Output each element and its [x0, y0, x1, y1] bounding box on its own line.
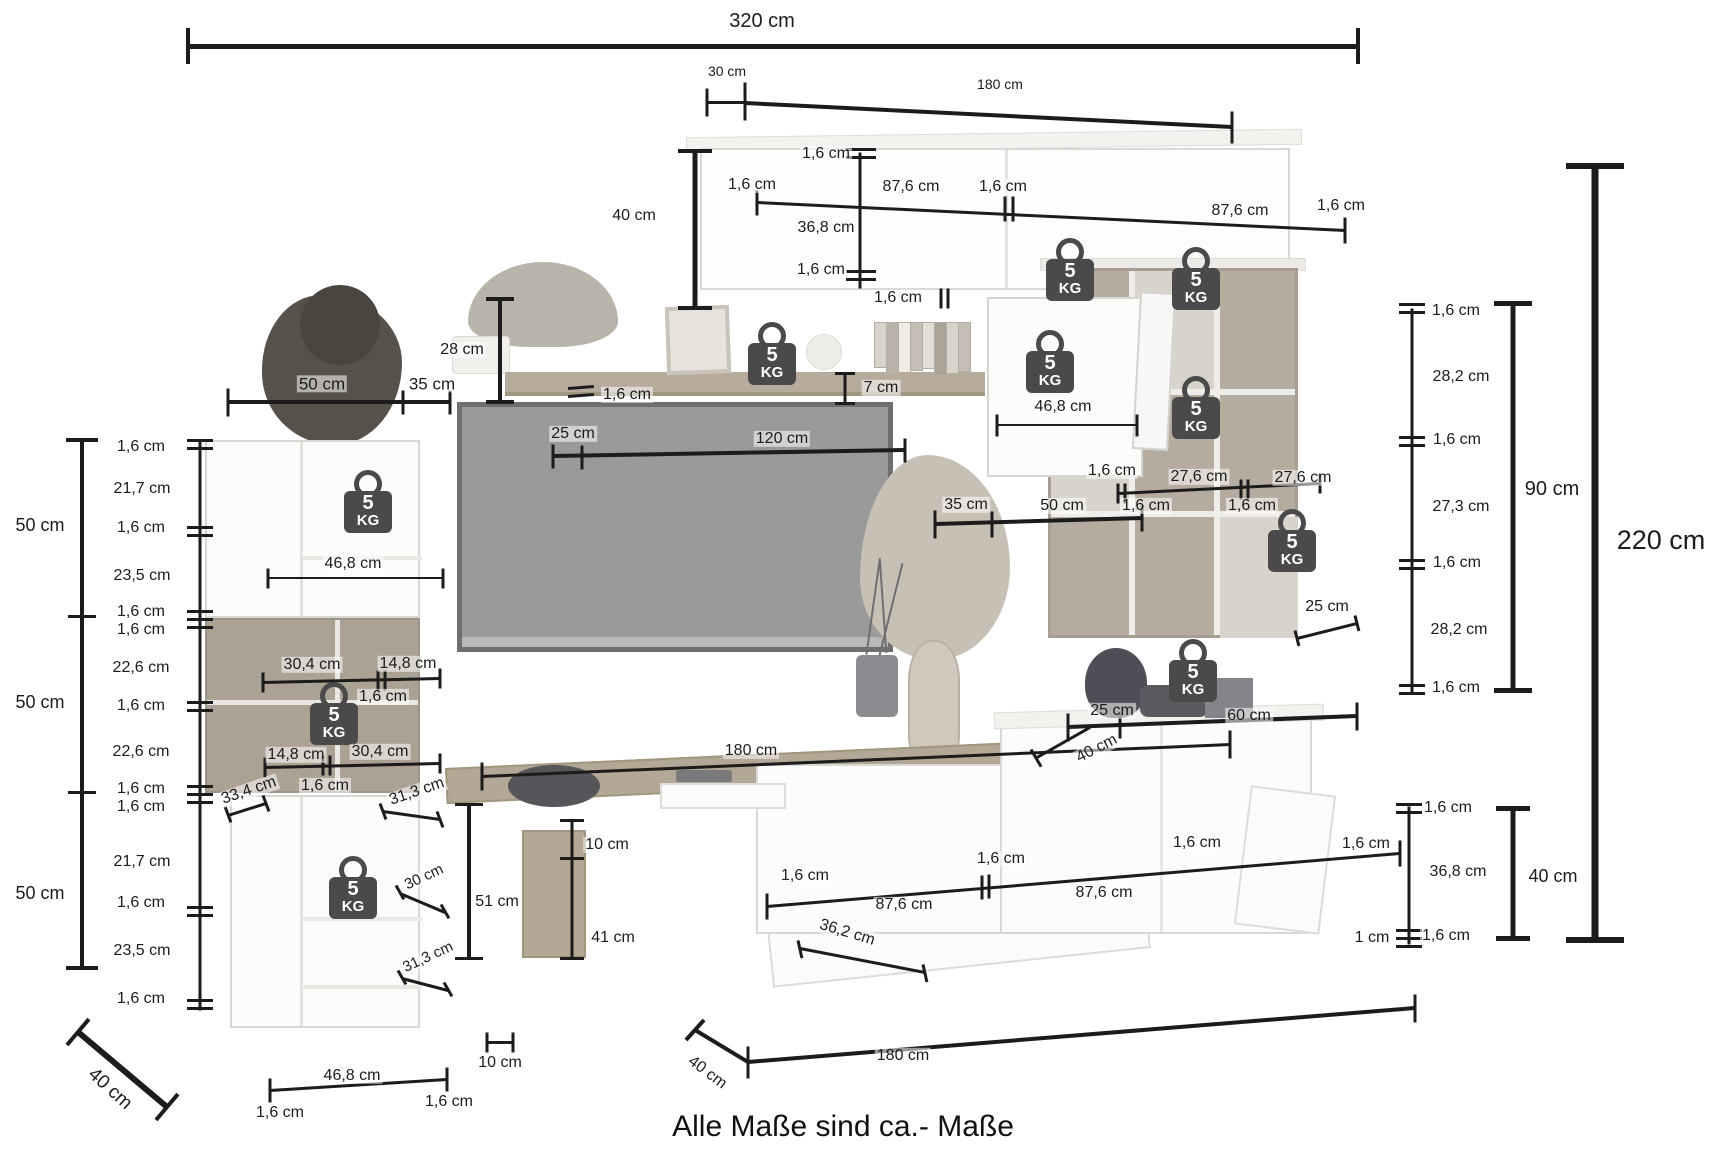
weight-capacity-badge: 5KG [1046, 238, 1094, 301]
dim-label: 1,6 cm [1226, 498, 1278, 514]
dim-label: 1,6 cm [872, 290, 924, 306]
dimension-line [498, 300, 502, 402]
weight-capacity-badge: 5KG [1026, 330, 1074, 393]
dim-label: 1,6 cm [1420, 928, 1472, 944]
dimension-line [187, 610, 213, 613]
dimension-line [187, 914, 213, 917]
dimension-line [68, 615, 96, 618]
dim-label: 25 cm [1088, 703, 1136, 719]
dimension-line [481, 762, 484, 790]
dimension-line [467, 805, 471, 958]
tv-screen [457, 402, 893, 652]
wall-shelf [505, 372, 985, 396]
dim-label: 1,6 cm [254, 1105, 306, 1121]
dimension-line [859, 152, 862, 288]
dimension-line [997, 424, 1137, 426]
dimension-line [486, 400, 514, 404]
dimension-line [512, 1032, 515, 1052]
dim-label: 36,8 cm [1428, 864, 1489, 880]
weight-capacity-badge: 5KG [1172, 247, 1220, 310]
dimension-line [1566, 937, 1624, 943]
dimension-line [269, 1078, 272, 1102]
dim-label: 1,6 cm [115, 698, 167, 714]
dim-label: 1,6 cm [1430, 303, 1482, 319]
dimension-line [1354, 615, 1361, 632]
dim-label: 1,6 cm [726, 177, 778, 193]
dimension-line [1399, 840, 1402, 866]
dim-label: 50 cm [297, 375, 347, 392]
dim-label: 50 cm [13, 516, 66, 534]
dimension-line [1399, 311, 1425, 314]
dimension-line [1592, 168, 1599, 940]
dimension-line [1396, 945, 1422, 948]
dim-label: 1,6 cm [1340, 836, 1392, 852]
dimension-line [187, 1007, 213, 1010]
dimension-line [1494, 688, 1532, 693]
dimension-line [187, 447, 213, 450]
dim-label: 27,6 cm [1273, 470, 1334, 486]
dimension-line [1414, 994, 1417, 1022]
dimension-line [66, 438, 98, 442]
dimension-line [187, 439, 213, 442]
dimension-line [187, 526, 213, 529]
dimension-line [1396, 811, 1422, 814]
dim-label: 1,6 cm [601, 387, 653, 403]
dimension-line [268, 577, 443, 579]
dimension-line [560, 857, 584, 860]
dimension-line [988, 874, 991, 898]
dim-label: 1,6 cm [115, 622, 167, 638]
plant-on-left-cabinet-top [300, 285, 380, 365]
dimension-line [486, 1032, 489, 1052]
dim-label: 40 cm [610, 208, 658, 224]
tv-bench-leg [522, 830, 586, 958]
dim-label: 220 cm [1615, 527, 1708, 555]
dim-label: 25 cm [549, 426, 597, 442]
dim-label: 50 cm [13, 693, 66, 711]
dim-label: 21,7 cm [112, 481, 173, 497]
dim-label: 36,8 cm [796, 220, 857, 236]
dim-label: 1,6 cm [115, 799, 167, 815]
dimension-line [835, 402, 855, 405]
dim-label: 60 cm [1225, 708, 1273, 724]
dim-label: 180 cm [875, 1048, 931, 1064]
dim-label: 28,2 cm [1431, 369, 1492, 385]
dimension-line [940, 288, 943, 308]
dim-label: 46,8 cm [322, 1068, 383, 1084]
dim-label: 87,6 cm [874, 897, 935, 913]
dim-label: 87,6 cm [1210, 203, 1271, 219]
dim-label: 22,6 cm [111, 660, 172, 676]
dimension-line [846, 278, 876, 281]
dimension-line [904, 438, 907, 462]
dim-label: 120 cm [754, 431, 810, 447]
dim-label: 1,6 cm [975, 851, 1027, 867]
dim-label: 50 cm [13, 884, 66, 902]
dimension-line [693, 152, 698, 308]
weight-capacity-badge: 5KG [748, 322, 796, 385]
dimension-line [187, 785, 213, 788]
dim-label: 35 cm [942, 497, 990, 513]
dim-label: 14,8 cm [266, 747, 327, 763]
dimension-line [1344, 217, 1347, 243]
dim-label: 1,6 cm [423, 1094, 475, 1110]
dim-label: 46,8 cm [1033, 399, 1094, 415]
dim-label: 30 cm [706, 64, 748, 78]
dimension-line [1511, 305, 1516, 690]
dimension-line [228, 400, 450, 404]
books [874, 322, 978, 372]
dimension-line [1396, 929, 1422, 932]
dimension-line [187, 701, 213, 704]
dim-label: 23,5 cm [112, 568, 173, 584]
dim-label: 30,4 cm [282, 657, 343, 673]
dimension-line [1136, 414, 1139, 436]
dim-label: 1,6 cm [977, 179, 1029, 195]
dim-label: 1,6 cm [115, 520, 167, 536]
weight-capacity-badge: 5KG [1268, 509, 1316, 572]
dimension-line [1396, 803, 1422, 806]
dimension-line [402, 390, 405, 414]
decor-sphere [806, 334, 842, 370]
dimension-line [187, 793, 213, 796]
dim-label: 1,6 cm [800, 146, 852, 162]
dimension-line [1356, 28, 1360, 64]
dimension-line [1004, 196, 1007, 221]
weight-capacity-badge: 5KG [1169, 639, 1217, 702]
dimension-line [552, 444, 555, 468]
dimension-line [1494, 301, 1532, 306]
dimension-line [1399, 684, 1425, 687]
dim-label: 320 cm [727, 11, 797, 31]
dim-label: 27,6 cm [1169, 469, 1230, 485]
dim-label: 40 cm [683, 1052, 731, 1094]
dimension-line [446, 1067, 449, 1091]
dimension-line [571, 820, 574, 958]
dim-label: 14,8 cm [378, 656, 439, 672]
dimension-line [934, 510, 937, 538]
dim-label: 10 cm [583, 837, 631, 853]
dimension-line [486, 297, 514, 301]
dimension-line [80, 440, 84, 968]
dim-label: 30,4 cm [350, 744, 411, 760]
dimension-line [1399, 436, 1425, 439]
dim-label: 25 cm [1303, 599, 1351, 615]
dim-label: 1 cm [1353, 930, 1392, 946]
dimension-line [187, 626, 213, 629]
dimension-line [442, 568, 445, 588]
dim-label: 7 cm [862, 380, 901, 396]
dimension-line [1297, 622, 1358, 640]
dim-label: 21,7 cm [112, 854, 173, 870]
dim-label: 27,3 cm [1431, 499, 1492, 515]
dim-label: 1,6 cm [115, 991, 167, 1007]
picture-frame [665, 305, 731, 375]
dim-label: 1,6 cm [1120, 498, 1172, 514]
dimension-line [996, 414, 999, 436]
dim-label: 1,6 cm [1431, 555, 1483, 571]
dim-label: 87,6 cm [1074, 885, 1135, 901]
dim-label: 1,6 cm [115, 439, 167, 455]
weight-capacity-badge: 5KG [329, 856, 377, 919]
dimension-line [66, 966, 98, 970]
dimension-line [560, 819, 584, 822]
dimension-line [991, 511, 994, 537]
dimension-line [835, 372, 855, 375]
dimension-line [227, 388, 230, 416]
dimension-line [1496, 806, 1530, 811]
dim-label: 35 cm [407, 375, 457, 392]
dimension-line [187, 709, 213, 712]
dimension-line [947, 288, 950, 308]
dimension-line [187, 906, 213, 909]
dimension-line [455, 803, 483, 806]
pampas-grass [860, 455, 1010, 660]
dimension-line [707, 101, 745, 104]
dim-label: 1,6 cm [115, 604, 167, 620]
grass-plant [468, 262, 618, 347]
dim-label: 23,5 cm [112, 943, 173, 959]
dimension-line [581, 445, 584, 469]
dimension-line [1229, 730, 1232, 758]
dim-label: 87,6 cm [881, 179, 942, 195]
dim-label: 46,8 cm [323, 556, 384, 572]
dim-label: 1,6 cm [299, 778, 351, 794]
dimension-line [186, 28, 190, 64]
dimension-line [1356, 702, 1359, 730]
left-cabinet-bottom-cube [230, 795, 420, 1028]
dim-label: 10 cm [476, 1055, 524, 1071]
dimension-line [187, 534, 213, 537]
caption-text: Alle Maße sind ca.- Maße [672, 1110, 1014, 1144]
dim-label: 1,6 cm [795, 262, 847, 278]
dim-label: 1,6 cm [779, 868, 831, 884]
book [958, 322, 971, 372]
dimension-line [190, 44, 1360, 49]
dim-label: 180 cm [975, 77, 1025, 91]
dim-label: 1,6 cm [115, 895, 167, 911]
dimension-line [267, 568, 270, 588]
dimension-line [449, 390, 452, 414]
dim-label: 1,6 cm [1171, 835, 1223, 851]
dim-label: 1,6 cm [357, 689, 409, 705]
dimension-line [262, 672, 265, 692]
dim-label: 1,6 cm [115, 781, 167, 797]
dimension-line [187, 801, 213, 804]
dim-label: 1,6 cm [1431, 432, 1483, 448]
dimension-line [1399, 444, 1425, 447]
dimension-line [678, 149, 712, 153]
dimension-line [756, 190, 759, 215]
dimension-line [187, 999, 213, 1002]
dimension-line [329, 755, 332, 775]
dimension-line [560, 957, 584, 960]
dim-label: 1,6 cm [1430, 680, 1482, 696]
dimension-line [1399, 567, 1425, 570]
dimension-line [455, 957, 483, 960]
dim-label: 1,6 cm [1422, 800, 1474, 816]
dimension-line [1411, 308, 1414, 692]
dimension-line [1496, 936, 1530, 941]
dimension-line [745, 101, 1232, 129]
dimension-line [748, 1006, 1415, 1064]
dimension-line [1399, 559, 1425, 562]
dimension-line [1399, 692, 1425, 695]
weight-capacity-badge: 5KG [310, 682, 358, 745]
dim-label: 41 cm [589, 930, 637, 946]
dimension-line [1396, 937, 1422, 940]
dimension-line [678, 306, 712, 310]
dimension-line [685, 1019, 706, 1042]
dim-label: 51 cm [473, 894, 521, 910]
dimension-line [1408, 806, 1411, 944]
dim-label: 1,6 cm [1086, 463, 1138, 479]
dimension-line [1511, 810, 1516, 938]
dim-label: 90 cm [1523, 479, 1581, 499]
dimension-line [1399, 303, 1425, 306]
dimension-line [487, 1041, 513, 1044]
dim-label: 1,6 cm [1315, 198, 1367, 214]
dim-label: 50 cm [1038, 498, 1086, 514]
remote-control [676, 770, 732, 782]
dimension-line [439, 668, 442, 688]
weight-capacity-badge: 5KG [344, 470, 392, 533]
weight-capacity-badge: 5KG [1172, 376, 1220, 439]
dim-label: 28,2 cm [1429, 622, 1490, 638]
dimension-line [439, 753, 442, 773]
dimension-line [68, 791, 96, 794]
dim-label: 22,6 cm [111, 744, 172, 760]
dimension-line [187, 618, 213, 621]
dimension-line [1231, 111, 1234, 143]
dvd-player [660, 783, 786, 809]
dimension-line [844, 374, 847, 403]
dim-label: 180 cm [723, 743, 779, 759]
dimension-line [1012, 196, 1015, 221]
dimension-line [766, 893, 769, 919]
dimension-line [846, 270, 876, 273]
dim-label: 40 cm [1526, 867, 1579, 885]
dimension-line [1566, 163, 1624, 169]
furniture-dimension-diagram: 5KG5KG5KG5KG5KG5KG5KG5KG5KG5KG 320 cm30 … [0, 0, 1724, 1159]
incense-bottle [856, 655, 898, 717]
dimension-line [981, 875, 984, 899]
dim-label: 28 cm [438, 342, 486, 358]
